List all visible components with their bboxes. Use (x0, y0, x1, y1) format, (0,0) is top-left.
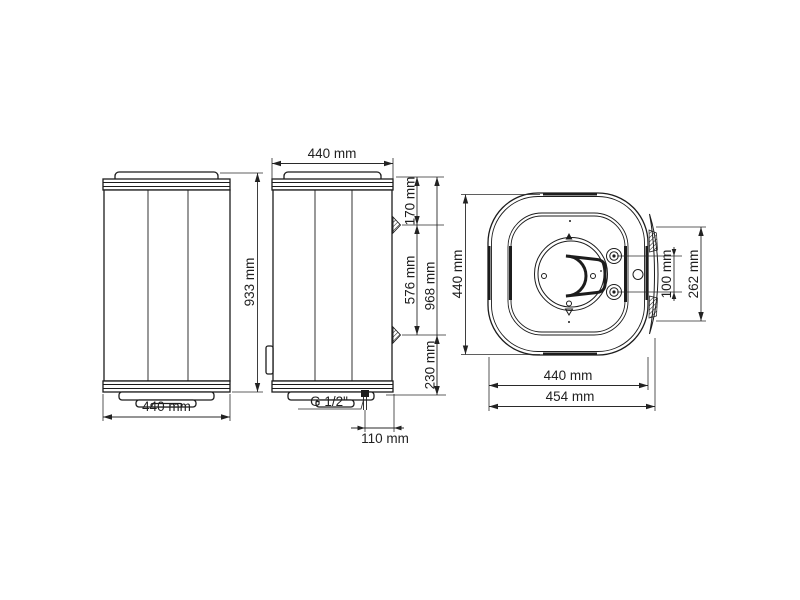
side-bracket-to-bottom-label: 230 mm (423, 341, 438, 390)
bracket-hook-upper (649, 230, 658, 252)
top-view (488, 193, 658, 355)
connection-offset-label: 110 mm (361, 431, 409, 446)
front-view (103, 172, 230, 407)
dim-side-vertical-group: 170 mm 576 mm 968 mm 230 mm (386, 177, 446, 395)
front-bottom-rim (103, 381, 230, 392)
dim-connection-offset: 110 mm (351, 394, 409, 446)
top-width-label: 440 mm (544, 368, 593, 383)
side-top-to-bracket-label: 170 mm (403, 177, 418, 226)
connection-thread-label: G 1/2" (310, 394, 348, 409)
water-connection-pipe (361, 390, 369, 397)
front-top-rim (103, 179, 230, 190)
front-width-label: 440 mm (142, 399, 191, 414)
wall-bracket-lower (393, 327, 401, 343)
side-bottom-rim (272, 381, 393, 392)
top-overall-width-label: 454 mm (546, 389, 595, 404)
side-body (273, 190, 392, 381)
front-height-label: 933 mm (242, 258, 257, 307)
top-depth-label: 440 mm (450, 250, 465, 299)
bracket-span-label: 262 mm (686, 250, 701, 299)
technical-drawing-canvas: 933 mm 440 mm 440 mm (0, 0, 800, 600)
side-width-label: 440 mm (308, 146, 357, 161)
side-view (266, 172, 401, 410)
bracket-hook-lower (649, 296, 658, 318)
side-top-rim (272, 179, 393, 190)
wall-bracket-upper (393, 217, 401, 233)
side-thermostat-cover (266, 346, 273, 374)
port-spacing-label: 100 mm (659, 250, 674, 299)
side-overall-height-label: 968 mm (423, 262, 438, 311)
side-bracket-spacing-label: 576 mm (403, 256, 418, 305)
front-body (104, 190, 230, 381)
water-heater-dimension-drawing: 933 mm 440 mm 440 mm (0, 0, 800, 600)
